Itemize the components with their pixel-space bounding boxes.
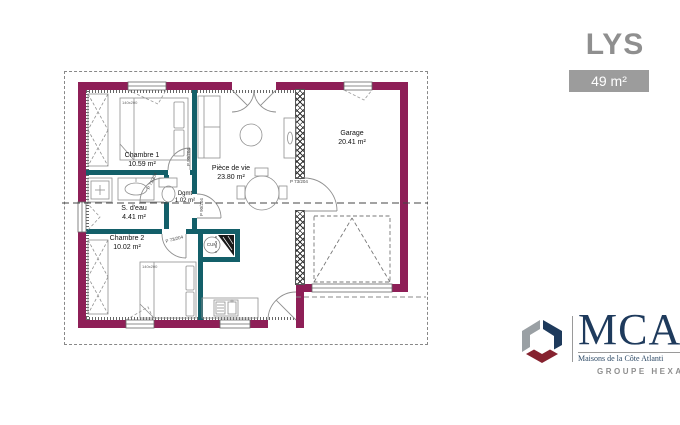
living-back-door-opening	[268, 320, 296, 328]
wardrobe-bedroom1	[88, 94, 108, 166]
door-swings	[140, 90, 337, 320]
brand-divider	[572, 316, 573, 362]
kitchen-counter	[202, 298, 258, 318]
garage-door	[312, 216, 392, 292]
tv-cabinet	[284, 118, 296, 158]
water-heater-label: CUM	[203, 242, 221, 247]
bed1-size-label: 140x200	[122, 100, 137, 105]
bed-bedroom2	[140, 262, 196, 318]
sofa	[198, 96, 220, 158]
bed2-size-label: 140x200	[142, 264, 157, 269]
bed-bedroom1	[120, 98, 188, 160]
room-label-garage: Garage20.41 m²	[318, 130, 386, 147]
door-label-garage: P 73/204	[290, 179, 308, 184]
brand-rule	[578, 352, 680, 353]
room-label-bathroom: S. d'eau4.41 m²	[100, 205, 168, 222]
door-label-bedroom1: P 90/204	[186, 148, 191, 166]
door-label-living: P 90/204	[199, 198, 204, 216]
floor-plan: Chambre 110.59 m² S. d'eau4.41 m² Chambr…	[62, 66, 434, 351]
shower	[88, 178, 112, 202]
brand-tagline: Maisons de la Côte Atlanti	[578, 354, 663, 363]
plan-title: LYS	[560, 28, 670, 62]
coffee-table	[240, 124, 262, 146]
brand-monogram: MCA	[578, 308, 680, 352]
area-badge: 49 m²	[569, 70, 649, 92]
entrance-opening	[232, 82, 276, 90]
room-label-bedroom2: Chambre 210.02 m²	[93, 235, 161, 252]
brand-group-label: GROUPE HEXA	[597, 367, 680, 376]
mca-cube-logo	[516, 314, 568, 366]
room-label-bedroom1: Chambre 110.59 m²	[108, 152, 176, 169]
room-label-living: Pièce de vie23.80 m²	[197, 165, 265, 182]
